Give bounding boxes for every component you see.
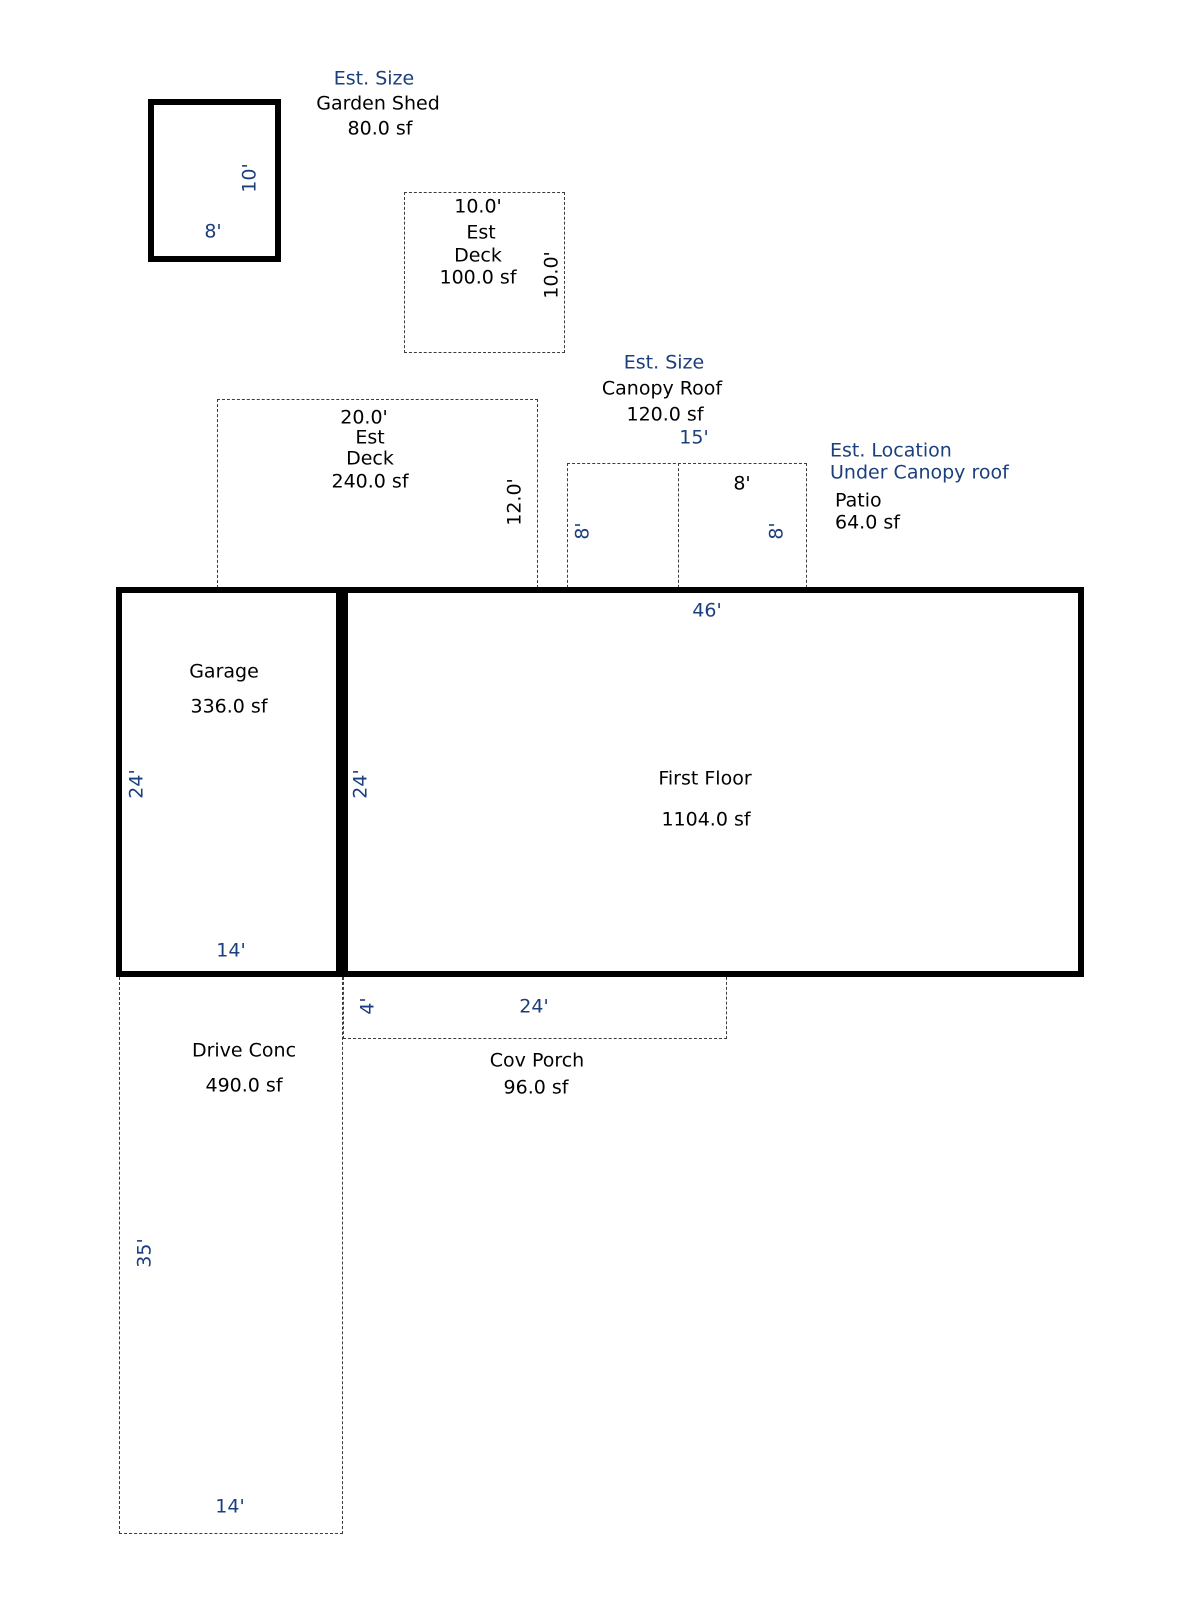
canopy-roof-note: Est. Size bbox=[624, 353, 704, 374]
cov-porch-width-dim: 24' bbox=[519, 997, 548, 1018]
canopy-left-height-dim: 8' bbox=[573, 522, 594, 539]
patio-area: 64.0 sf bbox=[835, 513, 900, 534]
garden-shed-area: 80.0 sf bbox=[348, 119, 413, 140]
first-floor-area: 1104.0 sf bbox=[661, 810, 750, 831]
small-deck-label-line1: Est bbox=[466, 223, 495, 244]
canopy-roof-label: Canopy Roof bbox=[602, 379, 722, 400]
floorplan-sketch: Est. Size Garden Shed 80.0 sf 10' 8' 10.… bbox=[0, 0, 1200, 1600]
canopy-roof-width-dim: 15' bbox=[679, 428, 708, 449]
patio-note-line1: Est. Location bbox=[830, 441, 952, 462]
canopy-roof-area: 120.0 sf bbox=[626, 405, 703, 426]
large-deck-label-line2: Deck bbox=[346, 449, 394, 470]
garage-width-dim: 14' bbox=[216, 941, 245, 962]
garden-shed-width-dim: 8' bbox=[204, 222, 221, 243]
canopy-patio-divider bbox=[678, 463, 679, 593]
patio-note-line2: Under Canopy roof bbox=[830, 463, 1009, 484]
large-deck-label-line1: Est bbox=[355, 428, 384, 449]
first-floor-height-dim: 24' bbox=[351, 769, 372, 798]
patio-label: Patio bbox=[835, 491, 882, 512]
small-deck-width-dim: 10.0' bbox=[454, 197, 502, 218]
garden-shed-label: Garden Shed bbox=[316, 94, 440, 115]
driveway-height-dim: 35' bbox=[135, 1238, 156, 1267]
canopy-right-height-dim: 8' bbox=[767, 522, 788, 539]
garage-outline bbox=[116, 587, 342, 977]
large-deck-area: 240.0 sf bbox=[331, 472, 408, 493]
large-deck-width-dim: 20.0' bbox=[340, 408, 388, 429]
garden-shed-note: Est. Size bbox=[334, 69, 414, 90]
cov-porch-area: 96.0 sf bbox=[504, 1078, 569, 1099]
first-floor-label: First Floor bbox=[658, 769, 751, 790]
garage-label: Garage bbox=[189, 662, 259, 683]
cov-porch-label: Cov Porch bbox=[490, 1051, 584, 1072]
large-deck-height-dim: 12.0' bbox=[505, 478, 526, 526]
first-floor-width-dim: 46' bbox=[692, 601, 721, 622]
small-deck-height-dim: 10.0' bbox=[542, 251, 563, 299]
garage-height-dim: 24' bbox=[127, 769, 148, 798]
small-deck-area: 100.0 sf bbox=[439, 268, 516, 289]
garage-area: 336.0 sf bbox=[190, 697, 267, 718]
small-deck-label-line2: Deck bbox=[454, 246, 502, 267]
driveway-area: 490.0 sf bbox=[205, 1076, 282, 1097]
garden-shed-height-dim: 10' bbox=[240, 163, 261, 192]
patio-width-dim: 8' bbox=[733, 474, 750, 495]
driveway-label: Drive Conc bbox=[192, 1041, 296, 1062]
driveway-width-dim: 14' bbox=[215, 1497, 244, 1518]
cov-porch-height-dim: 4' bbox=[358, 997, 379, 1014]
